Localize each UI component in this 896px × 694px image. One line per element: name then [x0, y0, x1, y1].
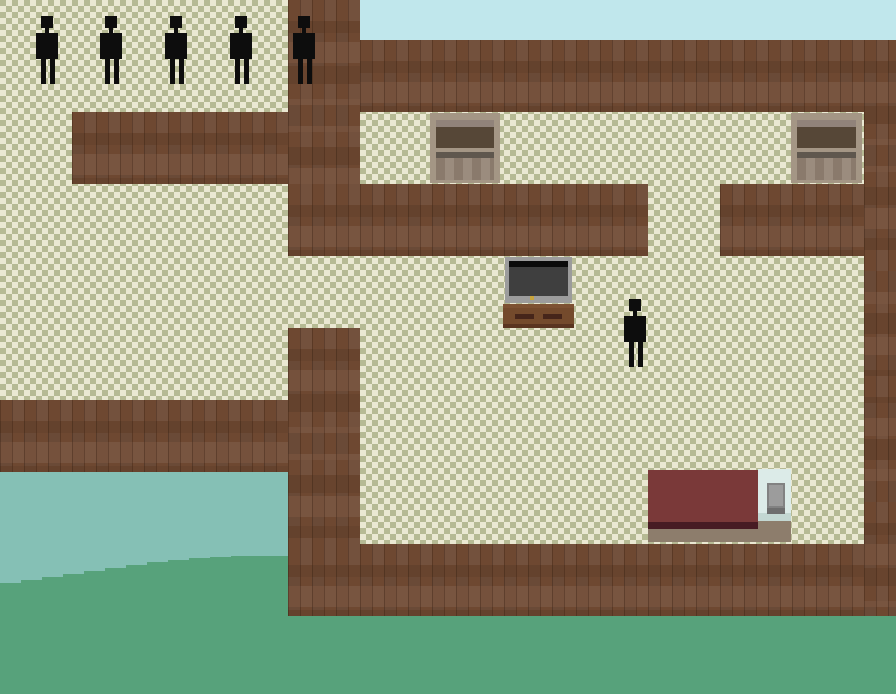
cupboard-slats: [797, 158, 856, 180]
sky: [360, 0, 896, 40]
npc-4-body: [230, 33, 252, 59]
npc-2[interactable]: [100, 16, 122, 84]
npc-2-leg-left: [105, 59, 110, 84]
npc-1-head: [41, 16, 53, 28]
wall-below-npc-room: [72, 112, 288, 184]
npc-3-leg-left: [170, 59, 175, 84]
wall-top-band: [360, 40, 896, 112]
npc-3-body: [165, 33, 187, 59]
wall-mid-left: [288, 184, 648, 256]
tv[interactable]: [505, 257, 572, 303]
npc-5-leg-right: [307, 59, 312, 84]
npc-2-head: [105, 16, 117, 28]
bed-headboard-strip: [758, 513, 791, 521]
stand-drawer-handle-left: [515, 314, 534, 319]
player-leg-left: [629, 342, 634, 367]
npc-1-leg-right: [50, 59, 55, 84]
cupboard-door-panel: [436, 127, 494, 148]
npc-4-leg-left: [235, 59, 240, 84]
cupboard-left[interactable]: [430, 113, 500, 183]
player-body: [624, 316, 646, 342]
npc-4-head: [235, 16, 247, 28]
player-head: [629, 299, 641, 311]
stand-top-edge: [503, 304, 574, 308]
bed[interactable]: [648, 469, 791, 543]
bed-pillow: [767, 483, 785, 508]
npc-5-leg-left: [298, 59, 303, 84]
tv-screen: [509, 267, 568, 296]
wall-bottom-band: [288, 544, 864, 616]
bed-blanket-edge: [648, 522, 760, 529]
npc-1[interactable]: [36, 16, 58, 84]
cupboard-door-panel: [797, 127, 856, 148]
npc-5[interactable]: [293, 16, 315, 84]
wall-mid-right: [720, 184, 864, 256]
bed-base: [648, 529, 763, 542]
npc-3-head: [170, 16, 182, 28]
npc-1-body: [36, 33, 58, 59]
stand-bottom-edge: [503, 324, 574, 328]
grass-field: [0, 616, 896, 694]
bed-base-under-pillow: [758, 521, 791, 542]
npc-5-head: [298, 16, 310, 28]
cupboard-top-shade: [797, 120, 856, 127]
bed-pillow-shadow: [767, 508, 785, 514]
tv-light-4: [530, 296, 534, 300]
npc-4-leg-right: [244, 59, 249, 84]
cupboard-slats: [436, 158, 494, 180]
npc-2-body: [100, 33, 122, 59]
stand-drawer-handle-right: [543, 314, 562, 319]
wall-right-column: [864, 40, 896, 616]
game-viewport[interactable]: [0, 0, 896, 694]
bed-blanket: [648, 470, 760, 526]
npc-3[interactable]: [165, 16, 187, 84]
npc-2-leg-right: [114, 59, 119, 84]
npc-3-leg-right: [179, 59, 184, 84]
player[interactable]: [624, 299, 646, 367]
cupboard-top-shade: [436, 120, 494, 127]
cupboard-right[interactable]: [791, 113, 862, 183]
npc-5-body: [293, 33, 315, 59]
npc-1-leg-left: [41, 59, 46, 84]
npc-4[interactable]: [230, 16, 252, 84]
player-leg-right: [638, 342, 643, 367]
tv-stand[interactable]: [503, 304, 574, 328]
